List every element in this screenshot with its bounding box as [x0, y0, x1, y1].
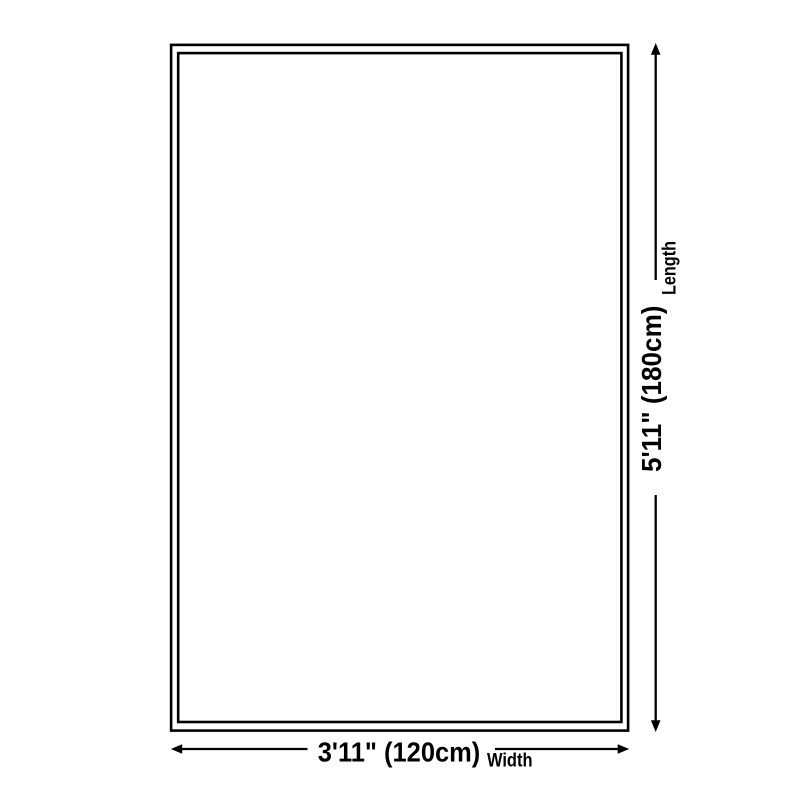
- svg-text:Width: Width: [487, 750, 533, 771]
- svg-text:Length: Length: [660, 241, 681, 295]
- svg-text:3'11" (120cm): 3'11" (120cm): [318, 737, 481, 768]
- svg-text:5'11" (180cm): 5'11" (180cm): [636, 306, 667, 473]
